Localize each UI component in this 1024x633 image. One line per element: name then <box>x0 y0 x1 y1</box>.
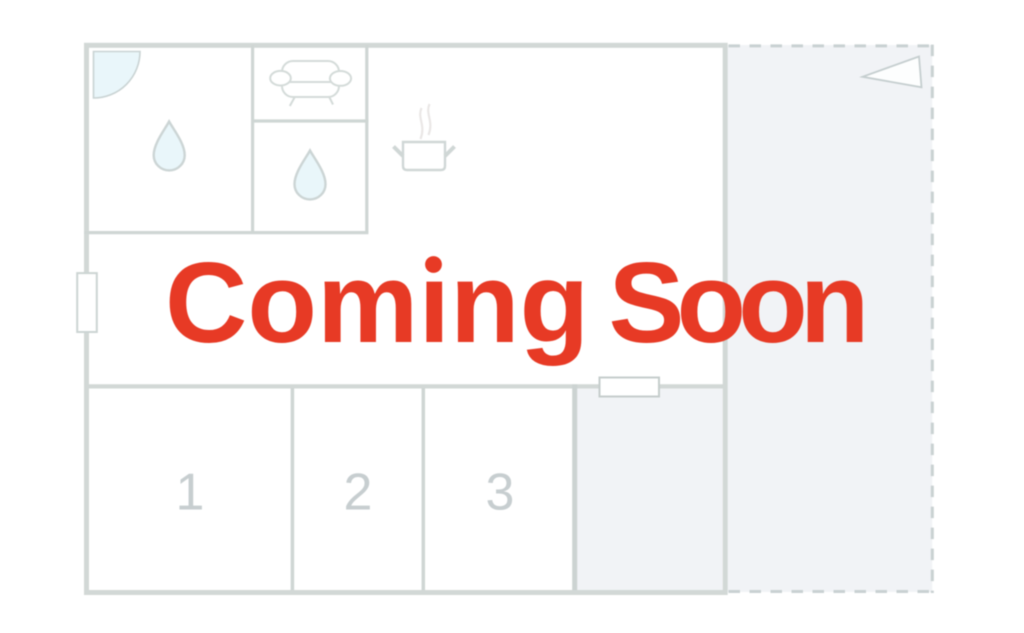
svg-text:2: 2 <box>344 464 373 522</box>
svg-text:3: 3 <box>486 464 515 522</box>
svg-text:Comıng: Comıng <box>165 240 589 367</box>
svg-text:1: 1 <box>176 464 205 522</box>
svg-text:Soon: Soon <box>609 240 863 367</box>
